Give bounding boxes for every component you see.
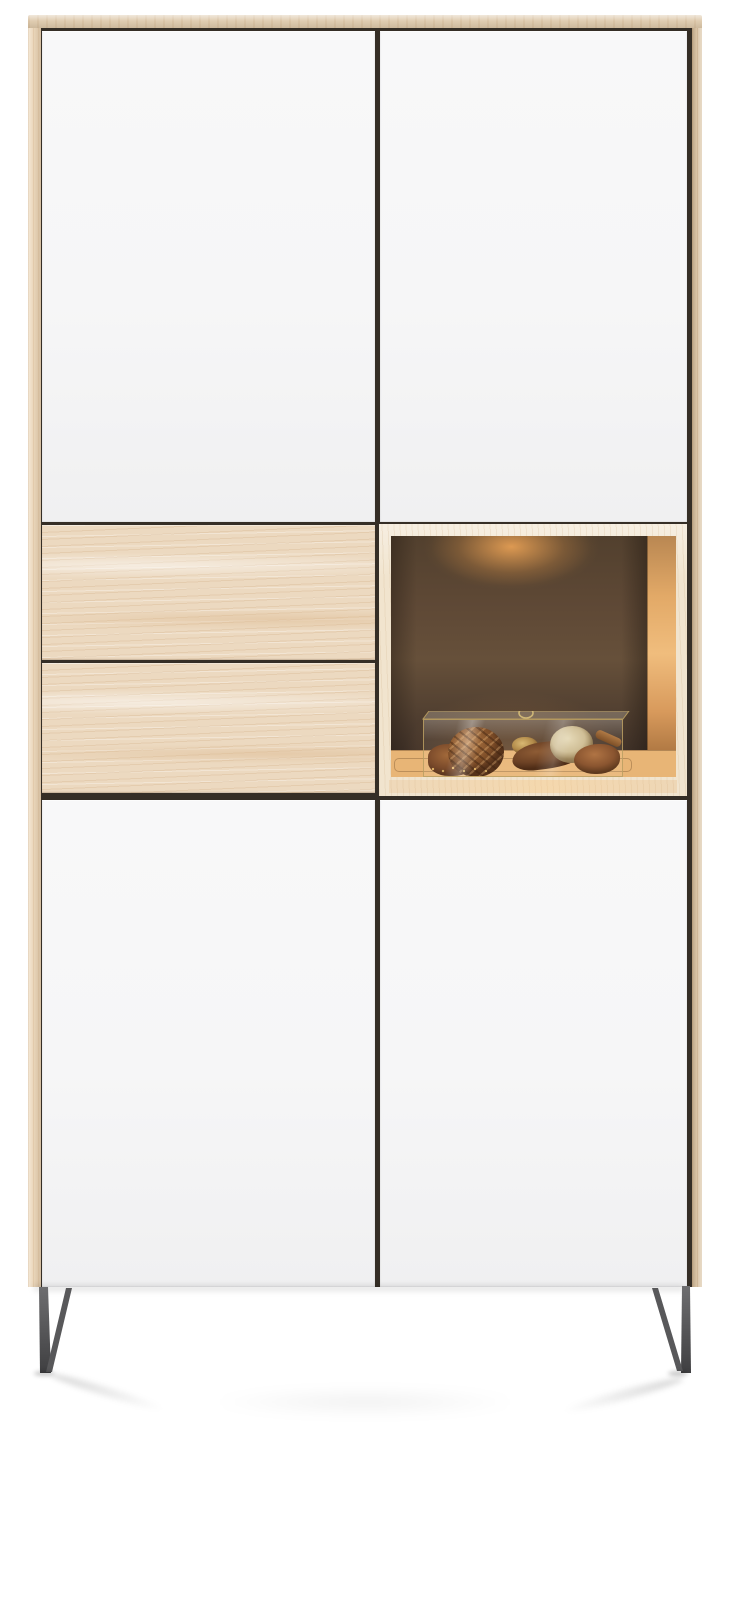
door-top-left [42,31,375,522]
niche-inner-right-wall [647,536,676,750]
sled-leg-right [640,1282,698,1378]
door-bottom-left [42,800,375,1287]
sled-leg-left [28,1282,86,1378]
cabinet-side-panel-right [692,28,702,1287]
niche-front-lip-glow [389,780,677,793]
door-bottom-right [380,800,687,1287]
display-cabinet [28,15,702,1287]
drawer-bottom [42,663,375,793]
cabinet-top-panel [28,15,702,28]
display-niche [379,524,687,796]
cabinet-front [41,28,692,1287]
drawer-top [42,525,375,660]
cabinet-side-panel-left [28,28,41,1287]
decor-bark-shells [574,744,620,774]
leg-cast-shadow-right [561,1374,684,1416]
studio-background [0,0,731,1600]
glass-box-front [423,719,623,777]
niche-interior [391,536,676,777]
decor-potpourri-bits [427,764,497,774]
glass-decor-box [423,711,623,777]
floor-shadow-wash [140,1382,590,1422]
door-top-right [380,31,687,522]
